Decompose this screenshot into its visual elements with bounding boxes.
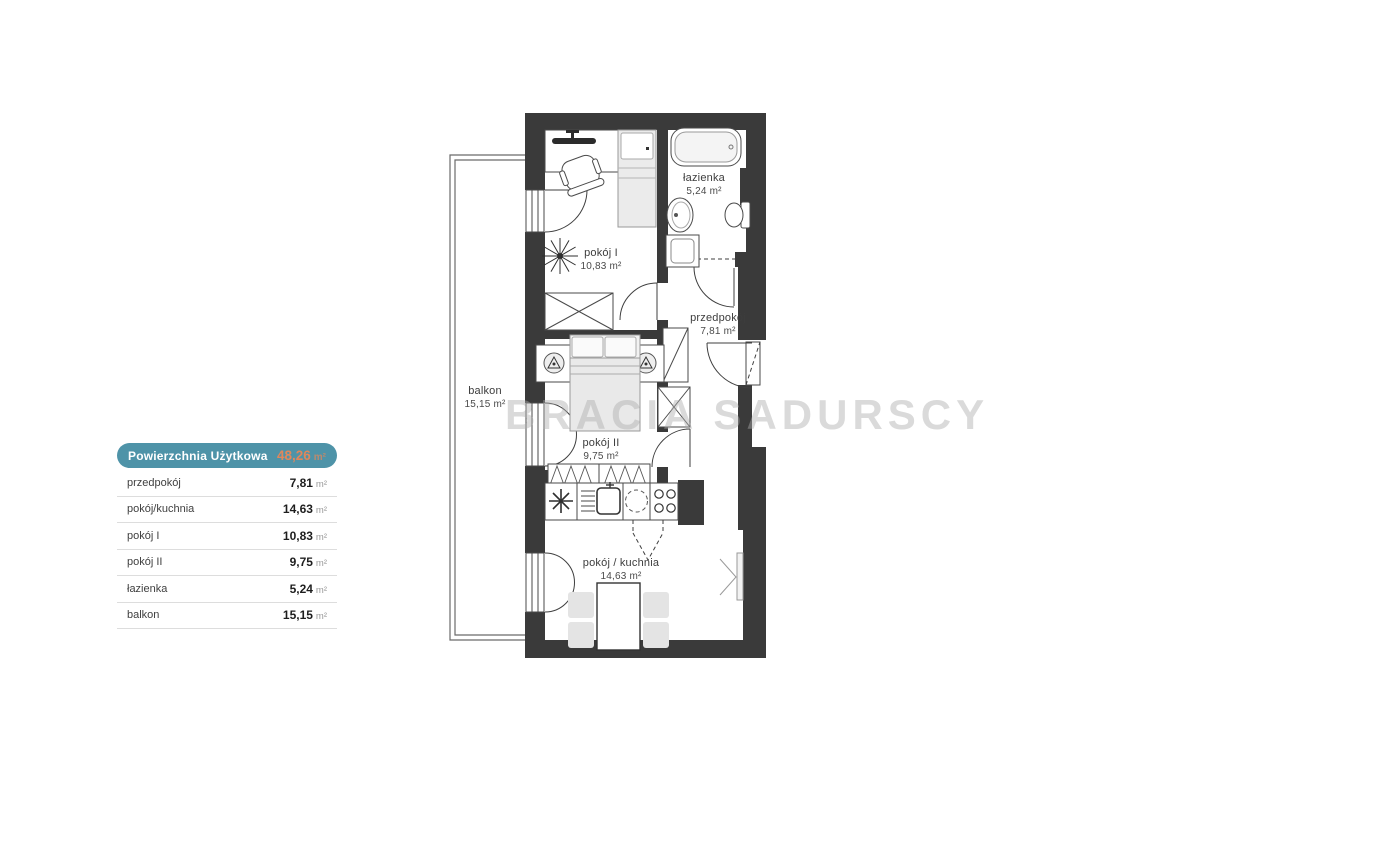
dining-table (568, 583, 669, 650)
door-room1 (620, 283, 657, 320)
legend-rows: przedpokój 7,81m² pokój/kuchnia 14,63m² … (117, 470, 337, 629)
room-label-lazienka: łazienka 5,24 m² (649, 171, 759, 199)
balcony-door-room1 (526, 190, 587, 232)
legend-header-label: Powierzchnia Użytkowa (128, 449, 268, 463)
toilet (725, 202, 750, 228)
kitchen-window (720, 553, 743, 600)
monitor-icon (552, 138, 596, 144)
extractor-projection (633, 520, 663, 560)
chair (568, 622, 594, 648)
washing-machine (666, 235, 699, 267)
room-label-kuchnia: pokój / kuchnia 14,63 m² (566, 556, 676, 584)
floor-plan: pokój I 10,83 m² łazienka 5,24 m² przedp… (440, 108, 780, 668)
legend-header: Powierzchnia Użytkowa 48,26m² (117, 443, 337, 468)
legend-row: pokój I 10,83m² (117, 523, 337, 550)
legend-row: łazienka 5,24m² (117, 576, 337, 603)
legend-row: przedpokój 7,81m² (117, 470, 337, 497)
watermark: BRACIA SADURSCY (505, 391, 989, 443)
sink (667, 198, 693, 232)
legend-header-value: 48,26m² (277, 447, 326, 465)
legend-row: balkon 15,15m² (117, 603, 337, 630)
dresser (545, 293, 613, 330)
kitchen-counter (545, 482, 678, 520)
chair (643, 622, 669, 648)
nightstand-left (536, 345, 572, 382)
chair (568, 592, 594, 618)
bathtub (671, 128, 741, 166)
room-label-przedpokoj: przedpokój 7,81 m² (663, 311, 773, 339)
legend-row: pokój II 9,75m² (117, 550, 337, 577)
chair (643, 592, 669, 618)
area-legend-table: Powierzchnia Użytkowa 48,26m² przedpokój… (117, 443, 337, 629)
legend-row: pokój/kuchnia 14,63m² (117, 497, 337, 524)
room-label-pokoj-1: pokój I 10,83 m² (546, 246, 656, 274)
entrance-door (707, 342, 760, 388)
